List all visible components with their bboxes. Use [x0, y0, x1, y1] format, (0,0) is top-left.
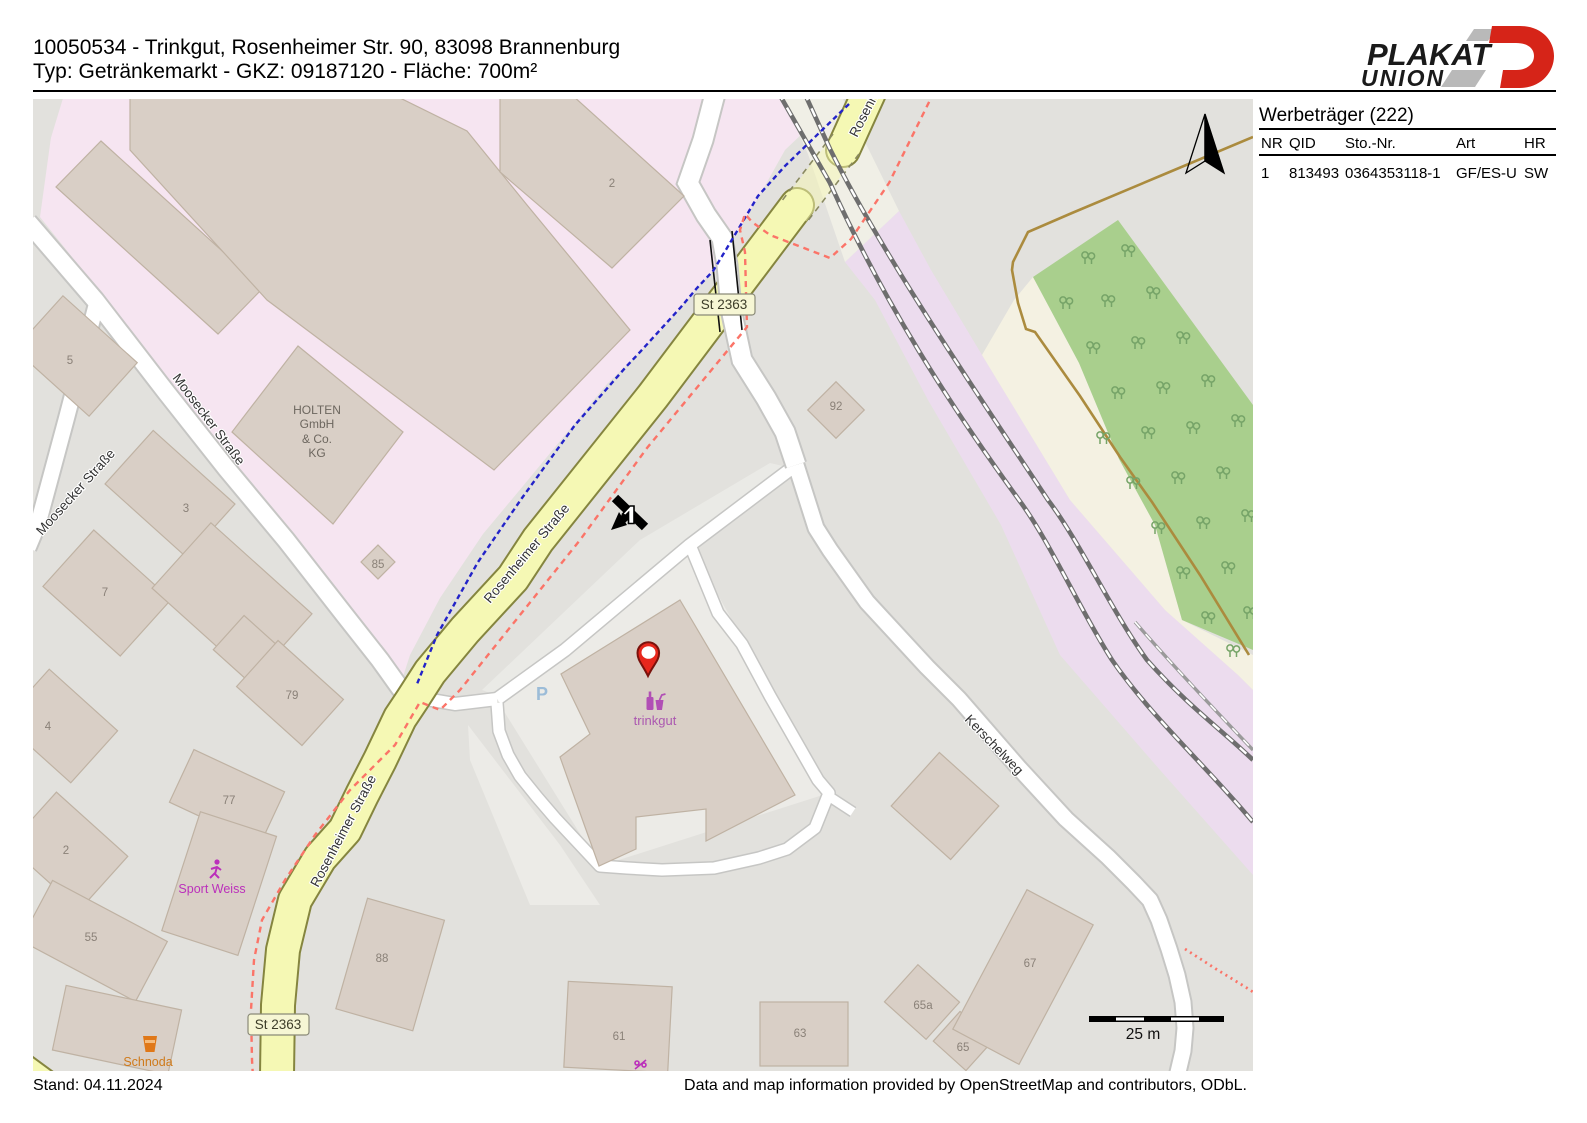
svg-text:Sport Weiss: Sport Weiss	[178, 882, 245, 896]
svg-text:trinkgut: trinkgut	[634, 713, 677, 728]
svg-text:7: 7	[102, 587, 108, 599]
svg-text:77: 77	[223, 795, 236, 807]
svg-text:Schnoda: Schnoda	[123, 1055, 172, 1069]
svg-text:& Co.: & Co.	[302, 432, 332, 446]
svg-text:5: 5	[67, 355, 73, 367]
svg-text:25 m: 25 m	[1126, 1026, 1160, 1043]
svg-text:St 2363: St 2363	[255, 1017, 302, 1032]
svg-text:P: P	[536, 684, 548, 704]
svg-text:63: 63	[794, 1028, 807, 1040]
svg-text:67: 67	[1024, 958, 1037, 970]
svg-text:4: 4	[45, 721, 52, 733]
svg-text:St 2363: St 2363	[701, 297, 748, 312]
svg-text:61: 61	[613, 1031, 626, 1043]
svg-text:KG: KG	[308, 446, 325, 460]
svg-text:2: 2	[609, 178, 615, 190]
svg-text:UNION: UNION	[1361, 65, 1445, 91]
svg-text:55: 55	[85, 932, 98, 944]
svg-text:2: 2	[63, 845, 69, 857]
svg-text:79: 79	[286, 690, 299, 702]
svg-text:GmbH: GmbH	[300, 417, 335, 431]
svg-text:85: 85	[372, 559, 385, 571]
svg-text:65a: 65a	[913, 1000, 933, 1012]
svg-text:88: 88	[376, 953, 389, 965]
svg-text:92: 92	[830, 401, 843, 413]
svg-text:3: 3	[183, 503, 189, 515]
svg-text:HOLTEN: HOLTEN	[293, 403, 341, 417]
svg-text:65: 65	[957, 1042, 970, 1054]
